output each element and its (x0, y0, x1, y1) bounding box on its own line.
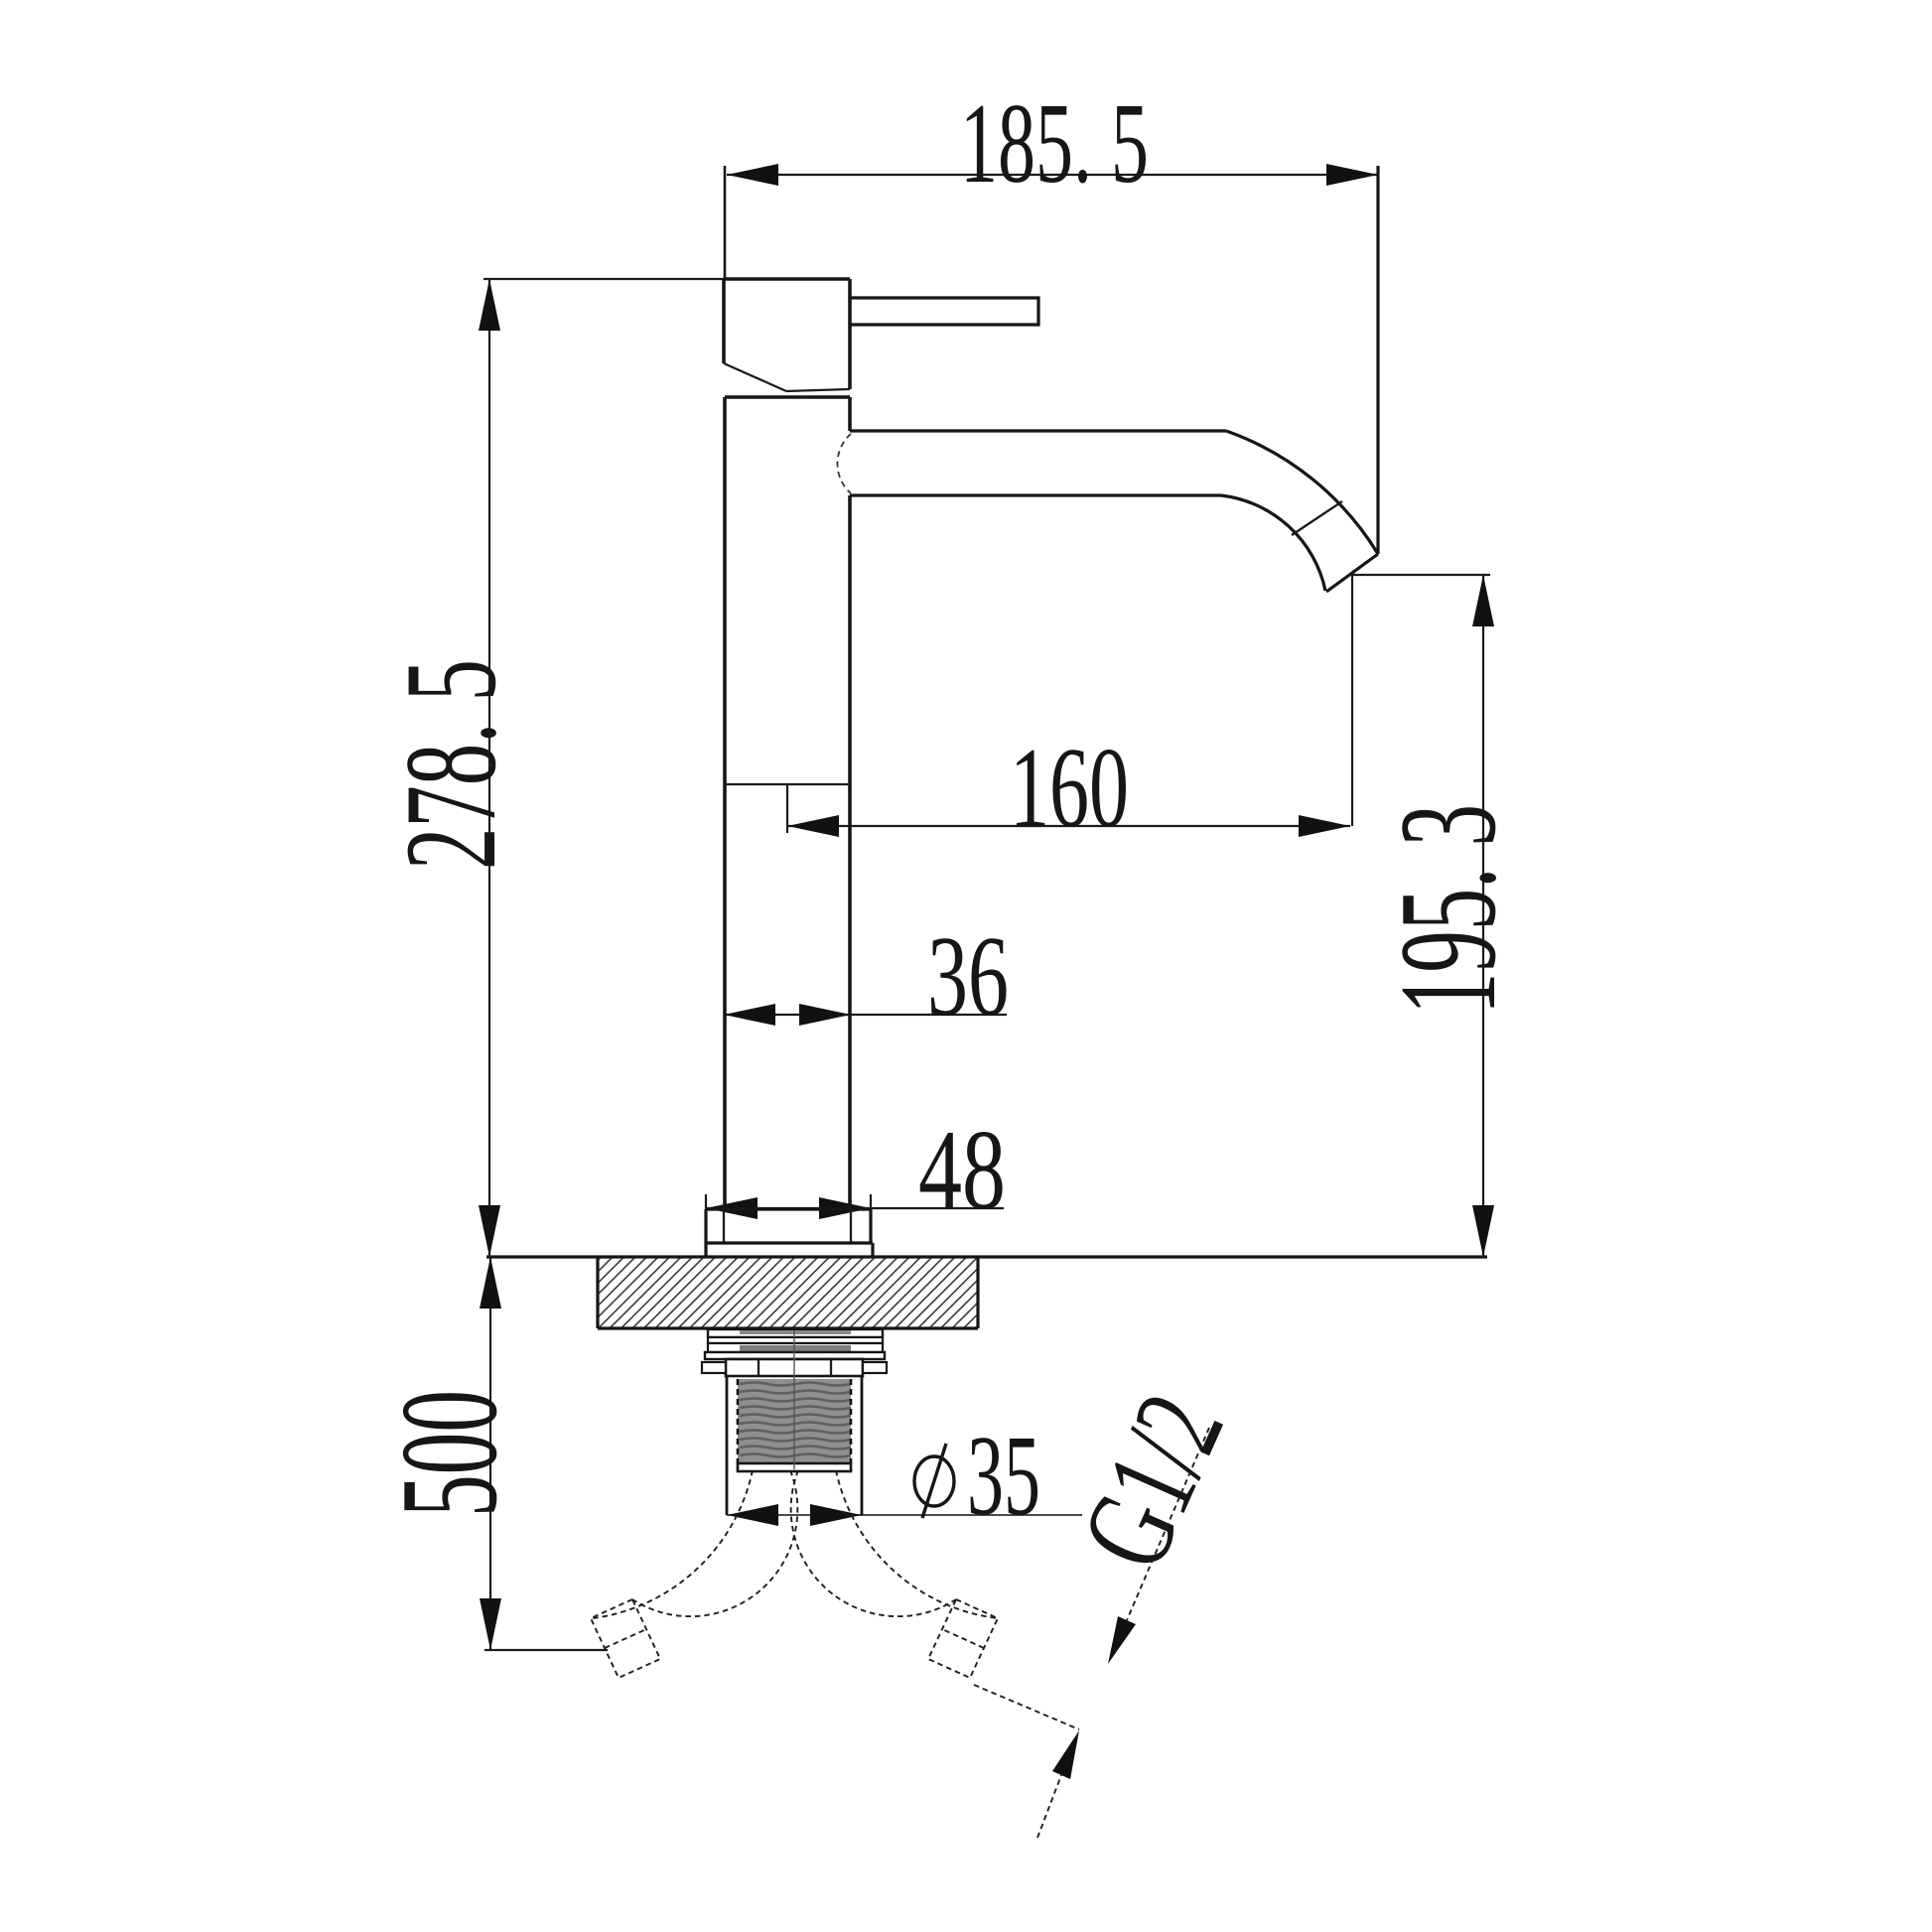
svg-text:500: 500 (372, 1390, 526, 1517)
svg-text:48: 48 (918, 1107, 1006, 1233)
svg-text:185. 5: 185. 5 (960, 80, 1149, 207)
svg-text:278. 5: 278. 5 (377, 659, 523, 870)
svg-text:35: 35 (967, 1413, 1040, 1539)
svg-text:195. 3: 195. 3 (1371, 804, 1525, 1015)
svg-text:160: 160 (1010, 725, 1129, 851)
svg-text:36: 36 (927, 913, 1009, 1039)
